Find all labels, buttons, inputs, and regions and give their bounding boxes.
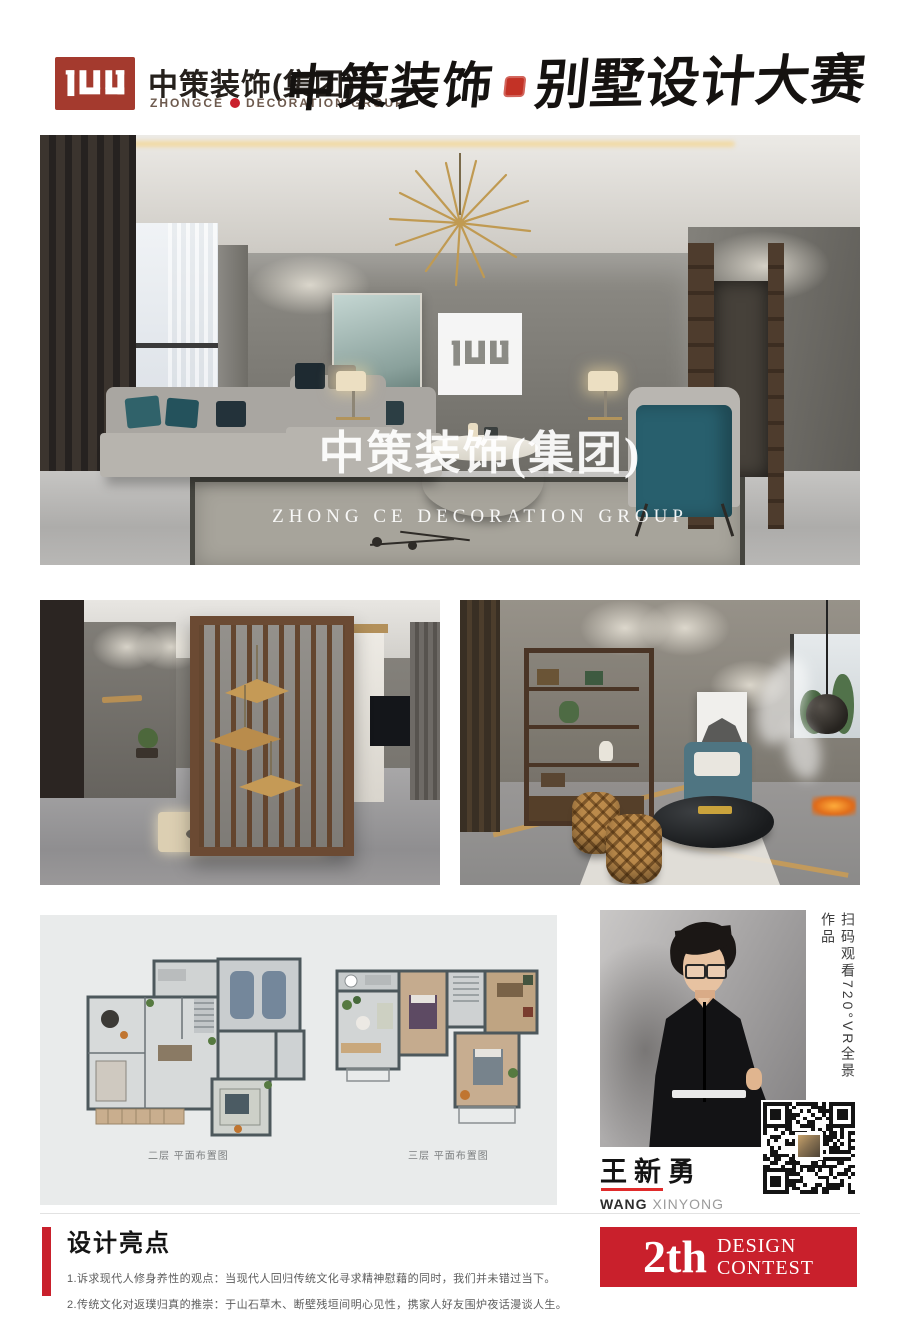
plan-caption-second: 二层 平面布置图 (148, 1147, 229, 1162)
teal-pillow (165, 398, 199, 429)
footer-divider (40, 1213, 860, 1214)
vr-scan-caption: 扫码观看720°VR全景作品 (818, 912, 858, 1087)
hanging-kettle (806, 694, 848, 734)
red-underline (601, 1188, 663, 1191)
teal-armchair (636, 405, 732, 517)
highlight-red-bar (42, 1227, 51, 1296)
floor-plan-third (327, 955, 547, 1135)
books (585, 671, 603, 685)
vase (599, 741, 613, 761)
zhongce-logo-icon (55, 57, 135, 110)
hand (746, 1068, 762, 1090)
highlight-item-2: 2.传统文化对返璞归真的推崇：于山石草木、断壁残垣间明心见性，携家人好友围炉夜话… (67, 1296, 607, 1312)
qr-center-thumbnail (795, 1132, 823, 1160)
gold-drum-stool (606, 814, 662, 884)
carved-wood-panel (460, 600, 500, 832)
table-tray (698, 806, 732, 814)
sofa-right-seat (286, 427, 394, 469)
designer-givenname: XINYONG (648, 1196, 724, 1212)
books (541, 773, 565, 787)
dark-pillow (295, 363, 325, 389)
highlights-title: 设计亮点 (67, 1223, 171, 1258)
plan-caption-third: 三层 平面布置图 (408, 1147, 489, 1162)
brand-dot-icon (230, 98, 240, 108)
calligraphy-seal-icon (503, 76, 526, 97)
floor-plans-panel: 二层 平面布置图 三层 平面布置图 (40, 915, 557, 1205)
kettle-chain (826, 600, 828, 696)
tv-screen (370, 696, 412, 746)
badge-word-contest: CONTEST (717, 1257, 814, 1279)
contest-title-calligraphy: 中策装饰 别墅设计大赛 (282, 35, 870, 124)
books (537, 669, 559, 685)
brand-en-left: ZHONGCE (150, 96, 224, 110)
floor-decor-branch (370, 533, 480, 547)
coffee-table-top (428, 435, 538, 461)
plant (559, 701, 579, 723)
artwork-roof-motif (701, 718, 743, 744)
branch-chandelier-icon (380, 153, 540, 303)
gallery-image-tearoom (460, 600, 860, 885)
contest-title-part1: 中策装饰 (283, 45, 499, 121)
white-belt (672, 1090, 746, 1098)
hanging-roof-ornaments-icon (205, 645, 325, 805)
dark-wall-panel (40, 600, 84, 798)
badge-number: 2th (643, 1234, 707, 1280)
bonsai-pot (136, 748, 158, 758)
bonsai-plant (138, 728, 158, 748)
table-lamp (336, 371, 370, 420)
fire-pit (812, 796, 856, 816)
table-books (484, 427, 498, 439)
contest-title-part2: 别墅设计大赛 (532, 35, 871, 120)
glasses-icon (685, 964, 706, 979)
badge-word-design: DESIGN (717, 1235, 814, 1257)
highlight-item-1: 1.诉求现代人修身养性的观点：当现代人回归传统文化寻求精神慰藉的同时，我们并未错… (67, 1270, 607, 1286)
contest-badge: 2th DESIGN CONTEST (600, 1227, 857, 1287)
badge-words: DESIGN CONTEST (717, 1235, 814, 1279)
glasses-icon (706, 964, 727, 979)
window-frame (136, 343, 218, 348)
floor-plan-second (62, 939, 322, 1144)
designer-name-en: WANG XINYONG (600, 1196, 724, 1212)
cove-light (95, 141, 735, 147)
shirt-placket (703, 1002, 706, 1102)
table-lamp (588, 371, 622, 420)
wood-panel (768, 243, 784, 529)
gallery-image-partition (40, 600, 440, 885)
wooden-lattice-screen (190, 616, 354, 856)
logo-glyph-icon (64, 65, 126, 103)
teal-pillow (125, 395, 162, 428)
white-pillow (694, 752, 740, 776)
curtains (410, 622, 440, 800)
table-decor (468, 423, 478, 439)
dark-pillow (216, 401, 246, 427)
designer-surname: WANG (600, 1196, 648, 1212)
poster-page: 中策装饰(集团) ZHONGCE DECORATION GROUP 中策装饰 别… (0, 0, 900, 1333)
hero-living-room-image: 中策装饰(集团) ZHONG CE DECORATION GROUP (40, 135, 860, 565)
designer-name-cn: 王新勇 (600, 1150, 702, 1189)
round-tea-table (652, 796, 774, 848)
